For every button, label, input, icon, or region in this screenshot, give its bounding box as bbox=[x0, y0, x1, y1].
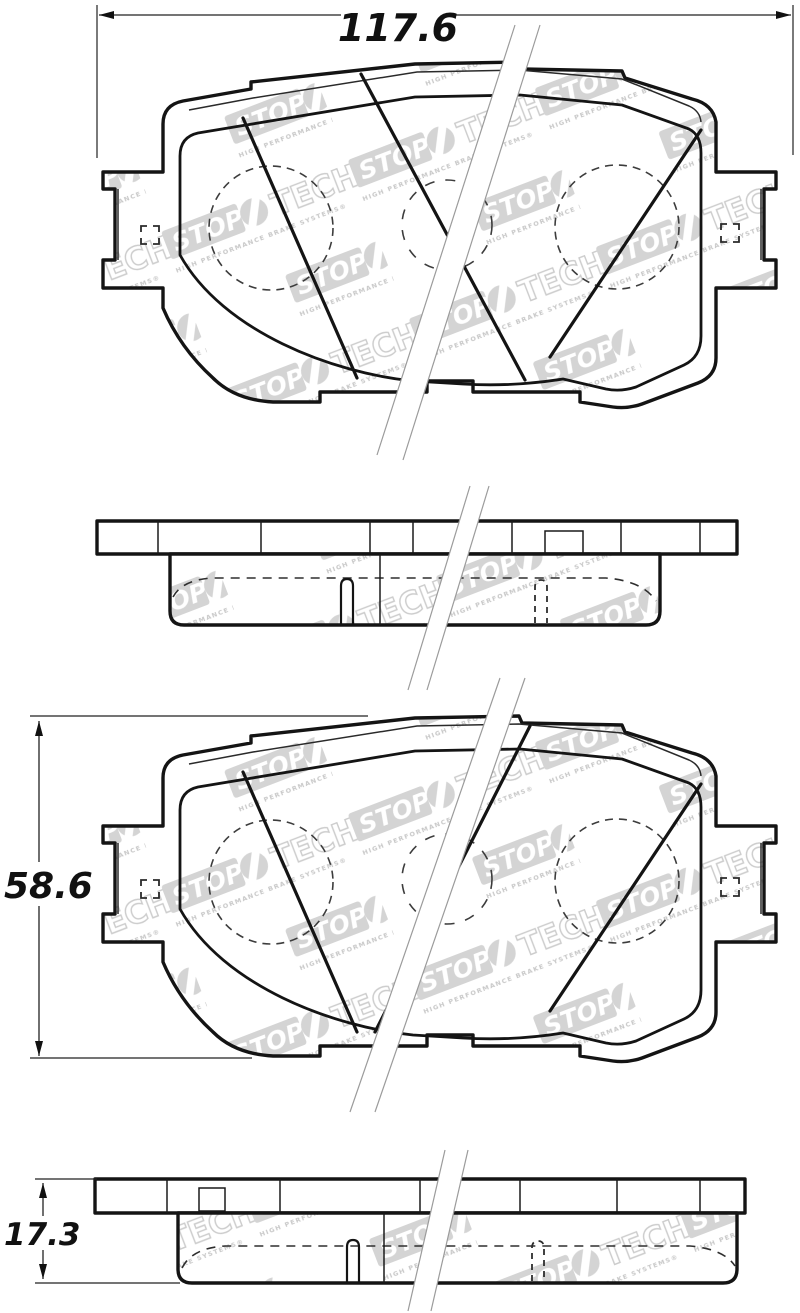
arrow-left-icon bbox=[99, 11, 114, 19]
arrow-up-icon bbox=[35, 721, 43, 736]
arrow-up-icon bbox=[39, 1183, 47, 1198]
height-dimension-value: 58.6 bbox=[4, 866, 93, 907]
arrow-down-icon bbox=[39, 1264, 47, 1279]
backing-plate-notch bbox=[199, 1188, 225, 1211]
arrow-down-icon bbox=[35, 1041, 43, 1056]
pad-edge-view-top bbox=[97, 521, 737, 640]
pad-front-view-top bbox=[75, 40, 800, 460]
thickness-dimension-value: 17.3 bbox=[4, 1217, 81, 1253]
backing-plate-notch bbox=[545, 531, 583, 553]
arrow-right-icon bbox=[776, 11, 791, 19]
width-dimension-value: 117.6 bbox=[338, 6, 458, 50]
technical-drawing-canvas: STOP TECH HIGH PERFORMANCE BRAKE SYSTEMS… bbox=[0, 0, 800, 1313]
thickness-dimension: 17.3 bbox=[4, 1179, 180, 1283]
brake-pad-dimension-diagram: STOP TECH HIGH PERFORMANCE BRAKE SYSTEMS… bbox=[0, 0, 800, 1313]
